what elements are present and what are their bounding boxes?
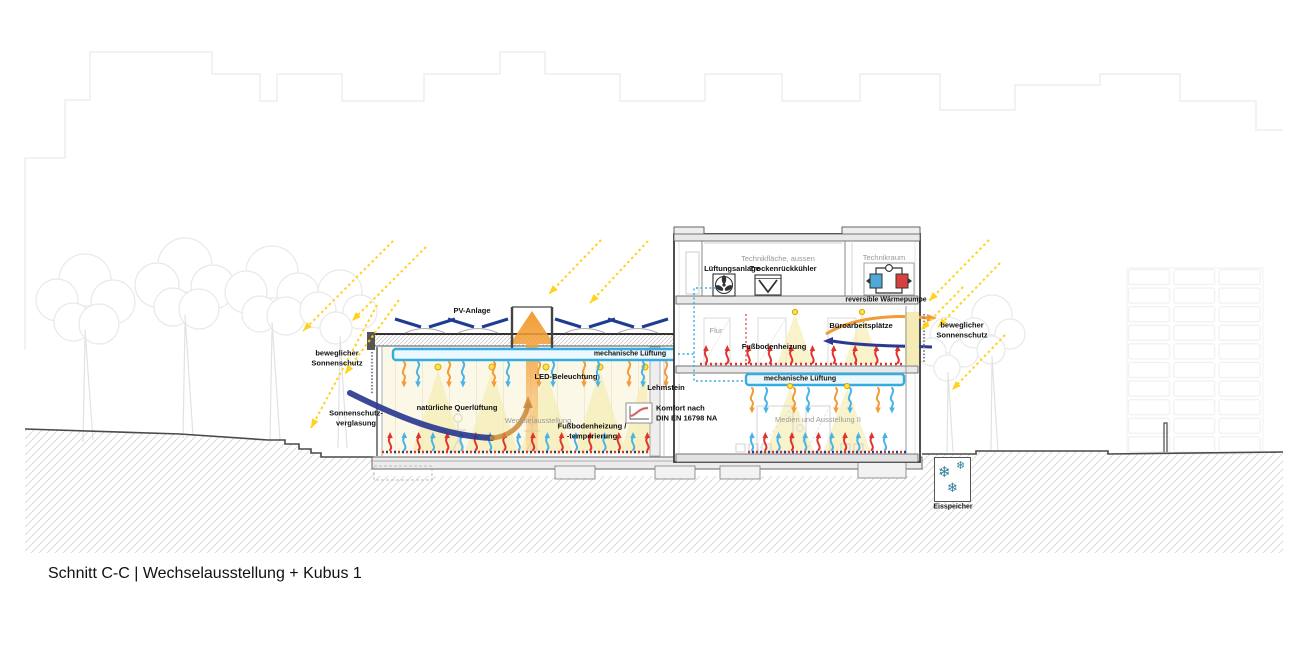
pv-panel-icon (448, 319, 508, 333)
tree-icon (225, 246, 319, 440)
dry-cooler-label: Trockenrückkühler (749, 264, 816, 274)
office-workplaces-label: Büroarbeitsplätze (829, 321, 892, 331)
movable-shading-right-label: beweglicherSonnenschutz (936, 320, 987, 340)
tree-icon (959, 295, 1025, 452)
snowflake-icon: ❄ (947, 481, 958, 494)
pv-panel-icon (555, 319, 615, 333)
section-drawing (0, 0, 1300, 645)
clay-brick-label: Lehmstein (647, 383, 685, 393)
natural-vent-label: natürliche Querlüftung (417, 403, 498, 413)
sun-ray-icon (587, 241, 648, 305)
section-drawing-canvas: PV-Anlage mechanische Lüftung LED-Beleuc… (0, 0, 1300, 645)
mech-vent-hall-label: mechanische Lüftung (594, 349, 666, 358)
pv-panel-icon (395, 319, 455, 333)
snowflake-icon: ❄ (956, 461, 965, 472)
drawing-title: Schnitt C-C | Wechselausstellung + Kubus… (48, 565, 362, 583)
comfort-label: Komfort nachDIN EN 16798 NA (656, 403, 717, 423)
tree-icon (135, 238, 235, 438)
ice-storage-box: ❄ ❄ ❄ (934, 457, 971, 502)
floor-heating-hall-label: Fußbodenheizung /-temperierung (558, 421, 627, 441)
tech-room-label: Technikraum (863, 253, 906, 263)
clay-brick-wall (650, 347, 664, 456)
heat-pump-label: reversible Wärmepumpe (845, 295, 926, 304)
pv-label: PV-Anlage (453, 306, 490, 316)
media-room-label: Medien und Ausstellung II (775, 415, 861, 425)
background-building (1127, 268, 1263, 454)
tech-area-label: Technikfläche, aussen (741, 254, 815, 264)
comfort-chart-icon (626, 403, 652, 423)
floor-heating-kubus-label: Fußbodenheizung (742, 342, 807, 352)
pv-panel-icon (608, 319, 668, 333)
snowflake-icon: ❄ (938, 465, 951, 480)
mech-vent-kubus-label: mechanische Lüftung (764, 374, 836, 383)
fan-icon (713, 274, 735, 296)
tree-icon (36, 254, 135, 442)
dry-cooler-icon (755, 275, 781, 295)
exhibition-hall (350, 307, 678, 456)
sun-ray-icon (546, 240, 601, 296)
heat-pump-icon (864, 263, 914, 295)
sun-ray-icon (927, 240, 989, 303)
led-label: LED-Beleuchtung (535, 372, 598, 382)
sun-glazing-label: Sonnenschutz-verglasung (329, 408, 383, 428)
movable-shading-left-label: beweglicherSonnenschutz (311, 348, 362, 368)
corridor-label: Flur (710, 326, 723, 336)
ice-storage-label: Eisspeicher (933, 502, 972, 511)
